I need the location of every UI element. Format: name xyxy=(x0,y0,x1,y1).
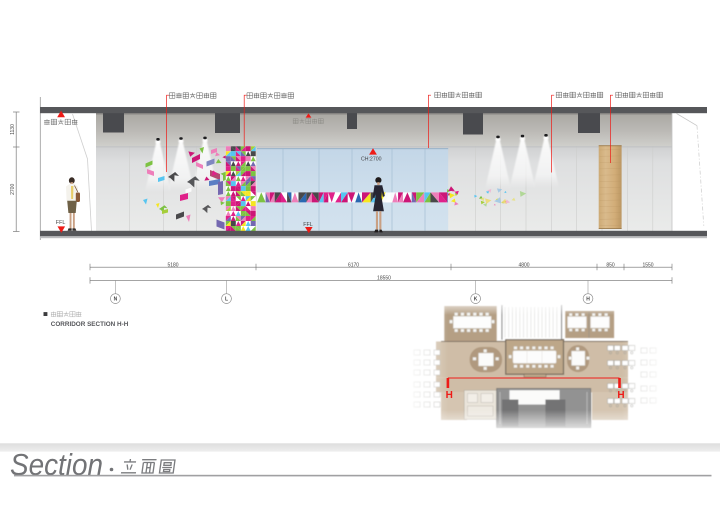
svg-text:N: N xyxy=(114,297,118,303)
svg-text:850: 850 xyxy=(606,262,615,268)
svg-text:H: H xyxy=(586,297,590,303)
svg-text:FFL: FFL xyxy=(56,220,66,226)
svg-text:H: H xyxy=(617,390,624,401)
svg-text:L: L xyxy=(225,297,228,303)
svg-text:Section: Section xyxy=(10,448,103,482)
svg-text:H: H xyxy=(446,390,453,401)
svg-text:CH:2700: CH:2700 xyxy=(361,156,382,162)
svg-text:18550: 18550 xyxy=(377,275,391,281)
svg-text:4800: 4800 xyxy=(518,262,529,268)
svg-text:6170: 6170 xyxy=(348,262,359,268)
svg-text:K: K xyxy=(474,297,478,303)
svg-text:1550: 1550 xyxy=(642,262,653,268)
svg-text:1130: 1130 xyxy=(10,124,16,135)
svg-text:5180: 5180 xyxy=(167,262,178,268)
svg-text:CORRIDOR SECTION H-H: CORRIDOR SECTION H-H xyxy=(51,321,129,328)
svg-text:2700: 2700 xyxy=(10,184,16,195)
